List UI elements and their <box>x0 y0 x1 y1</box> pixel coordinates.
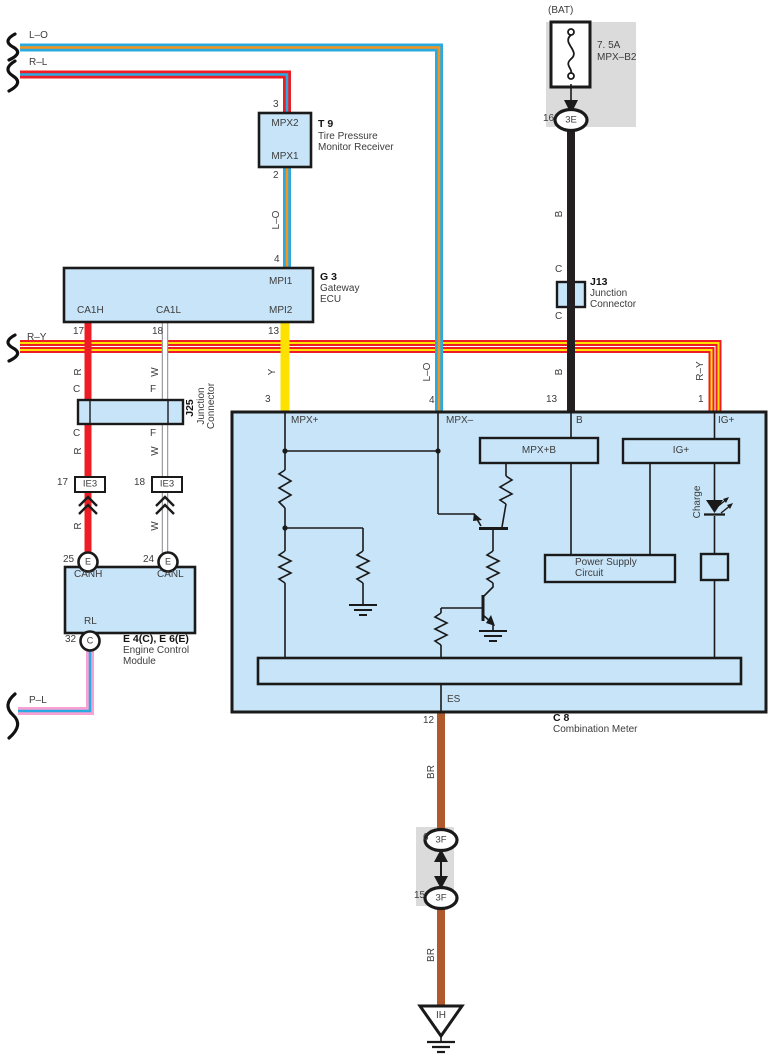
ecm-name-line1: Engine Control <box>123 646 189 656</box>
ie3-left-pin: 17 <box>57 478 68 488</box>
ground-point-id: IH <box>436 1011 446 1021</box>
ecm-connector-e1: E <box>85 558 91 567</box>
ecm-pin-25: 25 <box>63 555 74 565</box>
ecm-connector-c: C <box>87 637 94 646</box>
wire-label-rl-top: R–L <box>29 58 47 68</box>
gateway-terminal-mpi1: MPI1 <box>269 277 292 287</box>
meter-pin-13: 13 <box>546 395 557 405</box>
meter-pin-1: 1 <box>698 395 704 405</box>
wire-label-ry-drop: R–Y <box>696 361 706 380</box>
wire-label-w-lower: W <box>151 521 161 530</box>
wire-label-ry-left: R–Y <box>27 333 46 343</box>
ie3-right-label: IE3 <box>160 479 174 489</box>
gateway-terminal-mpi2: MPI2 <box>269 306 292 316</box>
ecm-connector-e2: E <box>165 558 171 567</box>
wire-rl-top <box>20 75 287 114</box>
fuse-rating: 7. 5A <box>597 41 620 51</box>
ecm-terminal-rl: RL <box>84 617 97 627</box>
wire-label-lo-top: L–O <box>29 31 48 41</box>
combination-meter <box>232 412 766 712</box>
j25-id: J25 <box>185 399 196 417</box>
wire-label-br-upper: BR <box>427 765 437 779</box>
wiring-svg <box>0 0 777 1062</box>
ie3-left-label: IE3 <box>83 479 97 489</box>
fuse-name: MPX–B2 <box>597 53 636 63</box>
tpms-pin-2: 2 <box>273 171 279 181</box>
wire-label-w-upper: W <box>151 367 161 376</box>
wire-label-r-mid: R <box>74 447 84 454</box>
floor-connector-pin-15: 15 <box>414 891 425 901</box>
junction-dot <box>435 448 440 453</box>
gateway-pin-17: 17 <box>73 327 84 337</box>
meter-id: C 8 <box>553 713 569 724</box>
gateway-name-line2: ECU <box>320 295 341 305</box>
tpms-terminal-mpx1: MPX1 <box>271 152 298 162</box>
ecm-terminal-canh: CANH <box>74 570 102 580</box>
meter-psu-line2: Circuit <box>575 569 603 579</box>
meter-pin-3: 3 <box>265 395 271 405</box>
brace-icon <box>8 34 18 60</box>
wire-label-f-upper: F <box>150 385 156 395</box>
ecm-terminal-canl: CANL <box>157 570 184 580</box>
tpms-id: T 9 <box>318 119 333 130</box>
meter-terminal-mpx-minus: MPX– <box>446 416 473 426</box>
wire-label-b-upper: B <box>555 211 565 218</box>
ie3-right-pin: 18 <box>134 478 145 488</box>
wire-label-b-lower: B <box>555 369 565 376</box>
gateway-name-line1: Gateway <box>320 284 359 294</box>
wire-label-c-black-lower: C <box>555 312 562 322</box>
brace-icon <box>8 335 18 361</box>
harness-braces <box>8 34 18 738</box>
meter-pin-12: 12 <box>423 716 434 726</box>
wire-label-y: Y <box>268 369 278 376</box>
meter-name: Combination Meter <box>553 725 637 735</box>
junction-dot <box>282 525 287 530</box>
j13-id: J13 <box>590 277 608 288</box>
ecm-pin-32: 32 <box>65 635 76 645</box>
ecm-name-line2: Module <box>123 657 156 667</box>
pin-number-16: 16 <box>543 114 554 124</box>
floor-connector-pin-6: 6 <box>423 833 429 843</box>
wire-label-r-upper: R <box>74 368 84 375</box>
wire-label-c-black-upper: C <box>555 265 562 275</box>
wiring-diagram-page: { "colors": { "wire_red": "#EE1C25", "wi… <box>0 0 777 1062</box>
junction-dot <box>282 448 287 453</box>
gateway-terminal-ca1h: CA1H <box>77 306 104 316</box>
wire-label-r-lower: R <box>74 522 84 529</box>
wire-label-f-lower: F <box>150 429 156 439</box>
j25-junction-connector-box <box>78 400 183 424</box>
gateway-pin-4: 4 <box>274 255 280 265</box>
connector-3f-bottom-label: 3F <box>435 893 446 903</box>
brace-icon <box>8 61 18 91</box>
gateway-id: G 3 <box>320 272 337 283</box>
meter-terminal-b: B <box>576 416 583 426</box>
j13-name-line2: Connector <box>590 300 636 310</box>
tpms-pin-3: 3 <box>273 100 279 110</box>
gateway-terminal-ca1l: CA1L <box>156 306 181 316</box>
ecm-pin-24: 24 <box>143 555 154 565</box>
connector-3f-top-label: 3F <box>435 835 446 845</box>
connector-3e-label: 3E <box>565 115 577 125</box>
meter-pin-4: 4 <box>429 396 435 406</box>
meter-block-ig: IG+ <box>673 446 689 456</box>
ecm-id: E 4(C), E 6(E) <box>123 634 189 645</box>
wire-label-c-red-lower: C <box>73 429 80 439</box>
wire-label-pl: P–L <box>29 696 47 706</box>
battery-label: (BAT) <box>548 6 573 16</box>
j13-name-line1: Junction <box>590 289 627 299</box>
j25-name-line2: Connector <box>207 383 217 429</box>
tpms-name-line1: Tire Pressure <box>318 132 378 142</box>
tpms-terminal-mpx2: MPX2 <box>271 119 298 129</box>
meter-terminal-ig: IG+ <box>718 416 734 426</box>
brace-icon <box>8 694 18 738</box>
meter-psu-line1: Power Supply <box>575 558 637 568</box>
meter-block-mpxb: MPX+B <box>522 446 556 456</box>
gateway-pin-18: 18 <box>152 327 163 337</box>
bus-bar <box>258 658 741 684</box>
wire-label-c-red-upper: C <box>73 385 80 395</box>
wire-label-br-lower: BR <box>427 948 437 962</box>
wire-label-lo-mid: L–O <box>272 211 282 230</box>
gateway-pin-13: 13 <box>268 327 279 337</box>
meter-terminal-es: ES <box>447 695 460 705</box>
meter-terminal-mpx-plus: MPX+ <box>291 416 319 426</box>
lamp-driver-box <box>701 554 728 580</box>
tpms-name-line2: Monitor Receiver <box>318 143 394 153</box>
meter-charge-label: Charge <box>693 486 703 519</box>
wire-label-lo-drop: L–O <box>423 363 433 382</box>
wire-lo-top <box>20 48 439 413</box>
wire-label-w-mid: W <box>151 446 161 455</box>
